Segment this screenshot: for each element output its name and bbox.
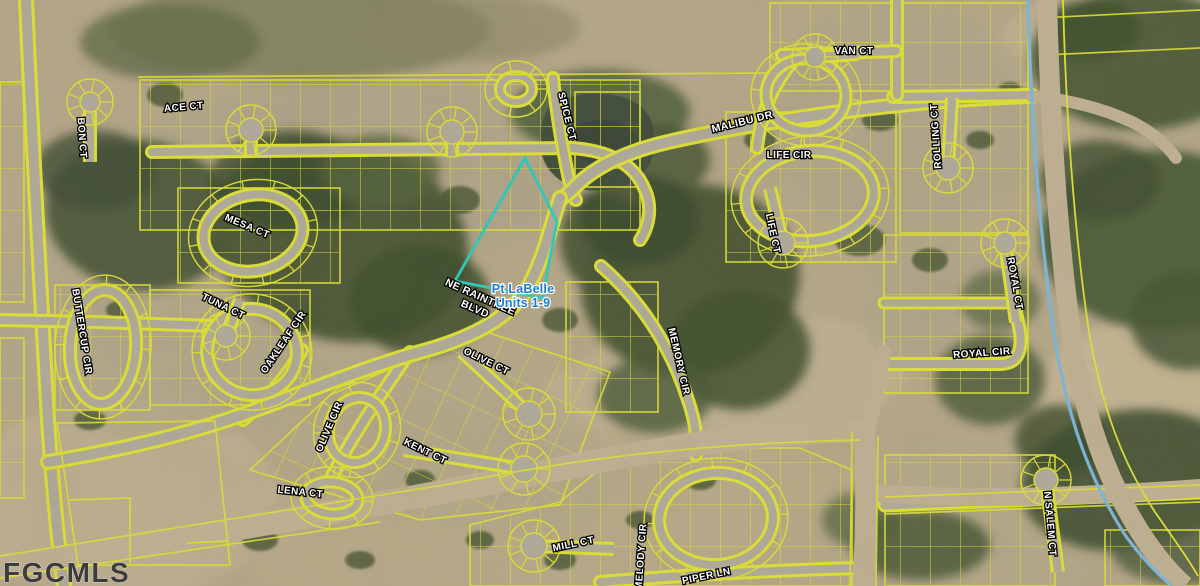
aerial-map-viewport[interactable]: ACE CT BON CT VAN CT MALIBU DR SPICE CT … [0, 0, 1200, 586]
subject-parcel-label: Pt LaBelle Units 1-9 [492, 282, 554, 310]
label-life-cir: LIFE CIR [767, 150, 812, 161]
svg-text:Pt LaBelle: Pt LaBelle [492, 282, 554, 296]
aerial-map: ACE CT BON CT VAN CT MALIBU DR SPICE CT … [0, 0, 1200, 586]
label-van-ct: VAN CT [835, 46, 874, 57]
svg-text:Units 1-9: Units 1-9 [496, 296, 551, 310]
fgcmls-watermark: FGCMLS [3, 557, 130, 586]
